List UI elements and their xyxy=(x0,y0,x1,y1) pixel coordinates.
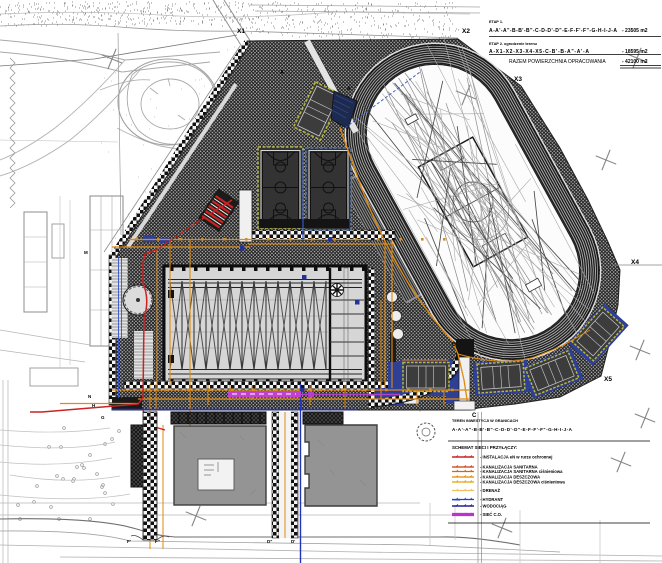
svg-text:H: H xyxy=(92,403,95,408)
svg-text:X2: X2 xyxy=(462,28,470,35)
svg-text:- INSTALACJA eN w rurze o: - INSTALACJA eN w rurze ochronnej xyxy=(480,455,552,460)
svg-text:- KANALIZACJA DESZCZOWA ciś: - KANALIZACJA DESZCZOWA ciśnieniowa xyxy=(480,480,566,485)
svg-text:X3: X3 xyxy=(514,76,522,83)
svg-text:A-A'-A"-B-B'-B"-C-D-D'-D"-E-F-: A-A'-A"-B-B'-B"-C-D-D'-D"-E-F-F'-F"-G-H-… xyxy=(452,427,573,432)
svg-text:TEREN INWESTYCJI W GRANICACH: TEREN INWESTYCJI W GRANICACH xyxy=(452,419,518,423)
svg-text:- KANALIZACJA SANITARNA ciś: - KANALIZACJA SANITARNA ciśnieniowa xyxy=(480,469,563,474)
svg-text:A: A xyxy=(280,70,284,76)
svg-text:X1: X1 xyxy=(237,28,245,35)
svg-text:- SIEĆ C.O.: - SIEĆ C.O. xyxy=(480,512,502,517)
svg-text:G: G xyxy=(101,415,105,420)
svg-text:- HYDRANT: - HYDRANT xyxy=(480,497,503,502)
svg-text:F: F xyxy=(149,416,152,421)
svg-text:E: E xyxy=(273,418,276,423)
svg-text:D": D" xyxy=(267,539,272,544)
svg-text:F': F' xyxy=(127,539,131,544)
svg-text:- 42100 m2: - 42100 m2 xyxy=(622,59,648,65)
svg-text:- WODOCIĄG: - WODOCIĄG xyxy=(480,504,507,509)
svg-text:ETAP 1.: ETAP 1. xyxy=(489,20,503,24)
svg-text:- DRENAŻ: - DRENAŻ xyxy=(480,488,500,493)
svg-text:X5: X5 xyxy=(604,376,612,383)
svg-text:D': D' xyxy=(291,539,295,544)
svg-text:ETAP 2. ogrodzenie terenu: ETAP 2. ogrodzenie terenu xyxy=(489,42,538,46)
svg-text:RAZEM POWIERZCHNIA OPRACOWAN: RAZEM POWIERZCHNIA OPRACOWANIA xyxy=(509,59,606,65)
svg-text:X4: X4 xyxy=(631,259,639,266)
svg-text:A-A'-A"-B-B'-B"-C-D-D'-D"-E-F-: A-A'-A"-B-B'-B"-C-D-D'-D"-E-F-F'-F"-G-H-… xyxy=(489,28,617,34)
svg-text:F": F" xyxy=(155,539,160,544)
svg-text:t-wod: t-wod xyxy=(452,498,460,502)
svg-text:B: B xyxy=(452,342,456,348)
svg-text:- 23505 m2: - 23505 m2 xyxy=(622,28,648,34)
svg-text:A': A' xyxy=(347,86,352,92)
svg-text:N: N xyxy=(88,394,91,399)
svg-text:SCHEMAT SIECI I PRZYŁĄCZY:: SCHEMAT SIECI I PRZYŁĄCZY: xyxy=(452,445,518,450)
svg-text:M: M xyxy=(84,250,88,255)
